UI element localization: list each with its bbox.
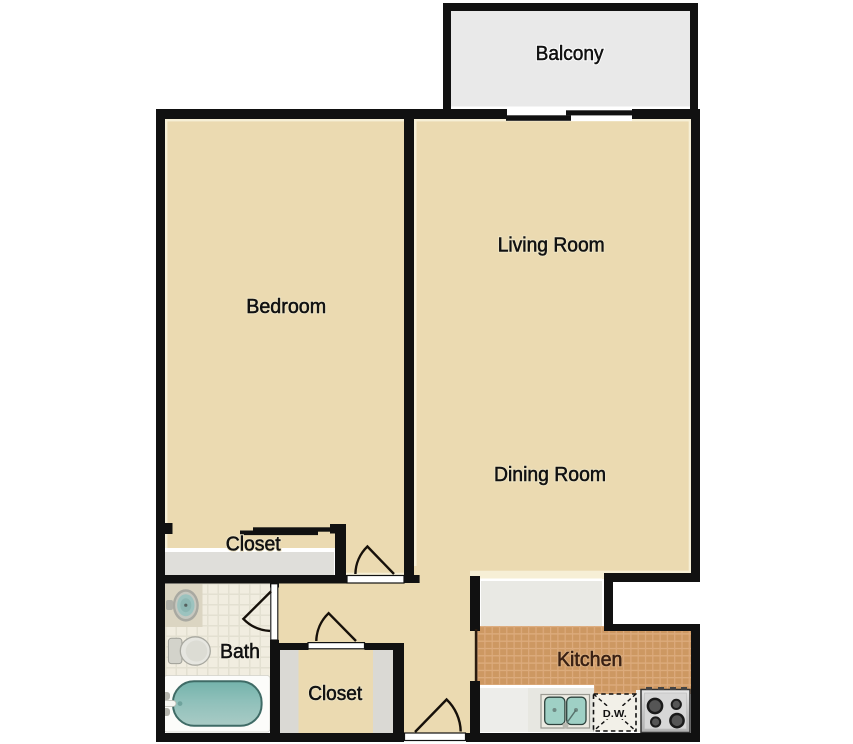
svg-text:Closet: Closet [308,683,362,705]
svg-text:Closet: Closet [226,534,281,556]
svg-text:Living Room: Living Room [498,235,605,257]
svg-text:Dining Room: Dining Room [494,464,606,486]
svg-text:Bath: Bath [220,641,260,663]
svg-text:D.W.: D.W. [603,708,627,720]
svg-text:Kitchen: Kitchen [557,649,623,671]
svg-text:Bedroom: Bedroom [246,296,326,318]
svg-text:Balcony: Balcony [536,43,604,65]
